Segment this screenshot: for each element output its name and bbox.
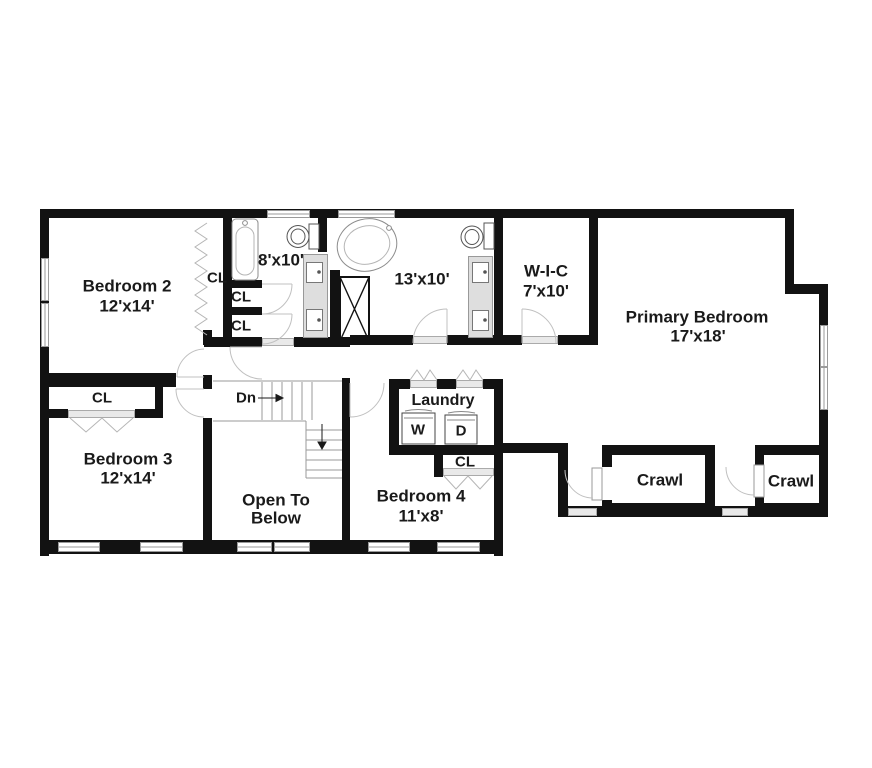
garden-tub bbox=[331, 212, 402, 278]
open-to-below-label-line1: Open To bbox=[242, 492, 310, 509]
room-label-crawl-right: Crawl bbox=[768, 473, 814, 490]
door-arc-bedroom2 bbox=[177, 349, 204, 377]
door-arc-crawl-right bbox=[726, 465, 764, 497]
door-arc-primary-bathroom bbox=[413, 309, 447, 343]
room-label-primary-bedroom: Primary Bedroom bbox=[626, 309, 769, 326]
stairs-down-label: Dn bbox=[236, 391, 256, 406]
room-dims-bedroom3: 12'x14' bbox=[100, 470, 155, 487]
closet-label-linen-1: CL bbox=[231, 290, 251, 305]
door-arc-hall-bathroom bbox=[230, 347, 262, 379]
wardrobe-zigzag bbox=[195, 223, 207, 335]
room-label-wic: W-I-C bbox=[524, 263, 568, 280]
door-arc-linen-closet-2 bbox=[262, 314, 292, 344]
toilet bbox=[461, 223, 494, 249]
room-label-bedroom3: Bedroom 3 bbox=[84, 451, 173, 468]
door-arc-crawl-left bbox=[565, 468, 602, 500]
closet-label-bedroom3: CL bbox=[92, 391, 112, 406]
room-label-bedroom4: Bedroom 4 bbox=[377, 488, 466, 505]
door-arc-bedroom3 bbox=[176, 389, 204, 417]
room-dims-bedroom2: 12'x14' bbox=[99, 298, 154, 315]
floor-plan: Bedroom 2 12'x14' Bedroom 3 12'x14' Bedr… bbox=[0, 0, 872, 768]
washer-label: W bbox=[411, 423, 425, 438]
room-dims-hall-bathroom: 8'x10' bbox=[258, 252, 304, 269]
door-arc-linen-closet-1 bbox=[262, 284, 292, 314]
closet-label-bedroom4: CL bbox=[455, 455, 475, 470]
toilet bbox=[287, 224, 319, 249]
room-label-laundry: Laundry bbox=[411, 393, 474, 409]
room-dims-bedroom4: 11'x8' bbox=[399, 508, 444, 525]
door-arc-wic bbox=[522, 309, 556, 343]
closet-label-linen-2: CL bbox=[231, 319, 251, 334]
bathtub bbox=[232, 219, 258, 280]
dryer-label: D bbox=[456, 424, 467, 439]
room-dims-primary-bathroom: 13'x10' bbox=[394, 271, 449, 288]
door-arc-bedroom4 bbox=[350, 383, 384, 417]
room-label-crawl-left: Crawl bbox=[637, 472, 683, 489]
open-to-below-label-line2: Below bbox=[251, 510, 301, 527]
room-dims-primary-bedroom: 17'x18' bbox=[670, 328, 725, 345]
room-dims-wic: 7'x10' bbox=[523, 283, 569, 300]
room-label-bedroom2: Bedroom 2 bbox=[83, 278, 172, 295]
shower-stall bbox=[340, 277, 369, 341]
closet-label-bedroom2: CL bbox=[207, 271, 227, 286]
